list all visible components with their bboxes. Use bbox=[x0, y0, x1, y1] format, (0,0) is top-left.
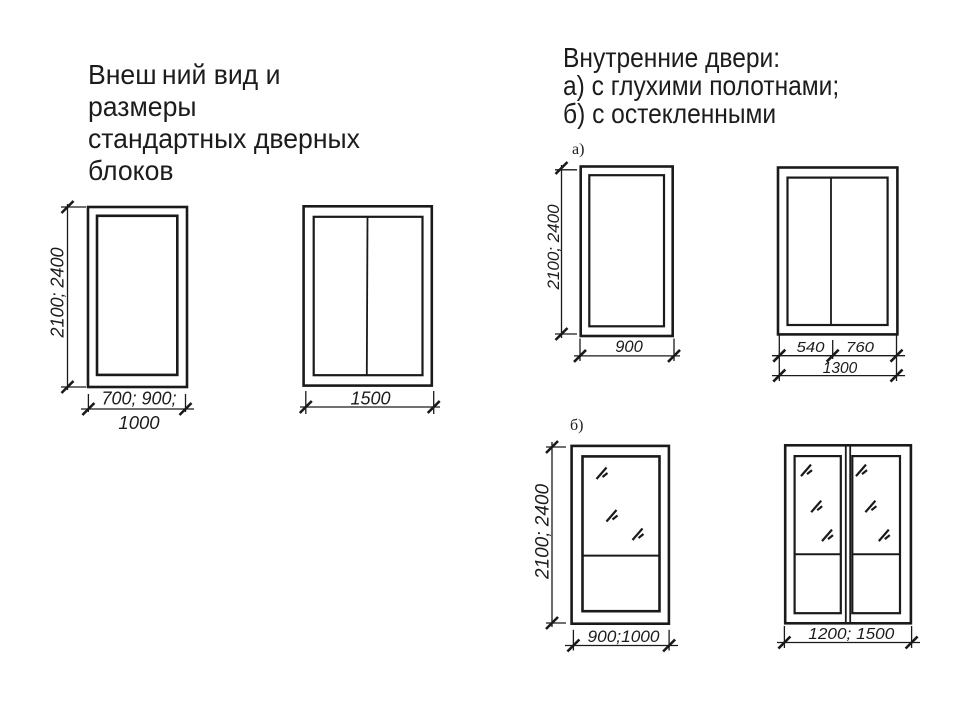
svg-text:1300: 1300 bbox=[823, 360, 858, 377]
svg-text:760: 760 bbox=[846, 339, 875, 356]
svg-text:700; 900;: 700; 900; bbox=[101, 389, 176, 409]
svg-text:2100; 2400: 2100; 2400 bbox=[48, 247, 68, 338]
svg-text:1000: 1000 bbox=[118, 412, 160, 433]
svg-text:б): б) bbox=[570, 417, 583, 434]
svg-text:540: 540 bbox=[797, 339, 826, 356]
svg-text:900;1000: 900;1000 bbox=[588, 627, 661, 646]
svg-text:1500: 1500 bbox=[350, 389, 390, 409]
svg-text:900: 900 bbox=[615, 338, 643, 356]
svg-text:а): а) bbox=[572, 141, 584, 158]
svg-text:1200; 1500: 1200; 1500 bbox=[808, 626, 894, 643]
svg-text:2100; 2400: 2100; 2400 bbox=[533, 484, 554, 581]
svg-text:2100; 2400: 2100; 2400 bbox=[544, 204, 563, 291]
